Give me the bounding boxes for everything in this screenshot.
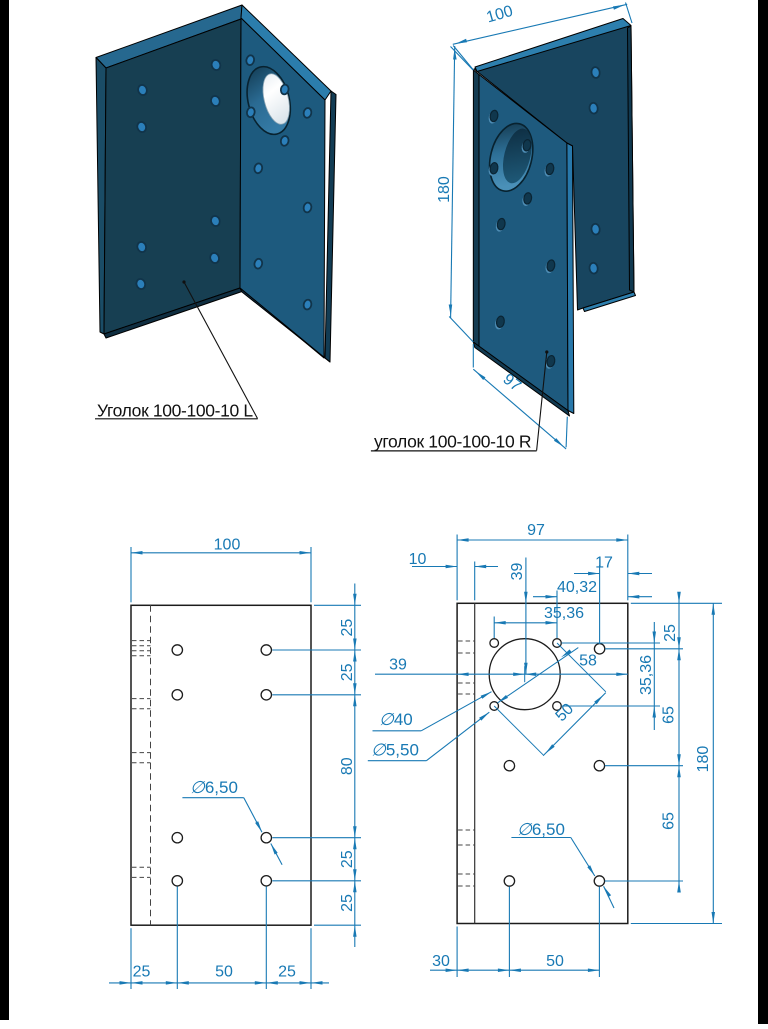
svg-text:65: 65 bbox=[661, 812, 678, 830]
svg-text:∅40: ∅40 bbox=[379, 710, 413, 729]
svg-text:∅5,50: ∅5,50 bbox=[371, 741, 419, 760]
svg-text:25: 25 bbox=[339, 850, 356, 868]
svg-text:25: 25 bbox=[133, 964, 151, 981]
svg-text:уголок 100-100-10 R: уголок 100-100-10 R bbox=[374, 432, 531, 452]
svg-text:39: 39 bbox=[389, 657, 407, 674]
svg-text:30: 30 bbox=[432, 953, 450, 970]
svg-text:35,36: 35,36 bbox=[638, 655, 655, 695]
svg-text:180: 180 bbox=[695, 746, 712, 773]
svg-text:80: 80 bbox=[339, 757, 356, 775]
svg-text:25: 25 bbox=[339, 619, 356, 637]
svg-text:100: 100 bbox=[214, 537, 241, 554]
svg-text:50: 50 bbox=[215, 964, 233, 981]
svg-text:25: 25 bbox=[662, 624, 679, 642]
svg-text:∅6,50: ∅6,50 bbox=[517, 820, 565, 839]
svg-text:39: 39 bbox=[509, 563, 526, 581]
svg-text:58: 58 bbox=[579, 653, 597, 670]
svg-text:65: 65 bbox=[661, 706, 678, 724]
svg-text:17: 17 bbox=[595, 555, 613, 572]
svg-text:Уголок 100-100-10 L: Уголок 100-100-10 L bbox=[97, 401, 253, 421]
svg-text:∅6,50: ∅6,50 bbox=[190, 778, 238, 797]
svg-text:10: 10 bbox=[409, 551, 427, 568]
svg-text:25: 25 bbox=[278, 964, 296, 981]
svg-text:35,36: 35,36 bbox=[544, 605, 584, 622]
svg-text:25: 25 bbox=[339, 894, 356, 912]
svg-text:50: 50 bbox=[546, 953, 564, 970]
svg-text:40,32: 40,32 bbox=[557, 579, 597, 596]
svg-text:97: 97 bbox=[527, 522, 545, 539]
svg-text:25: 25 bbox=[339, 663, 356, 681]
svg-text:180: 180 bbox=[436, 176, 453, 203]
